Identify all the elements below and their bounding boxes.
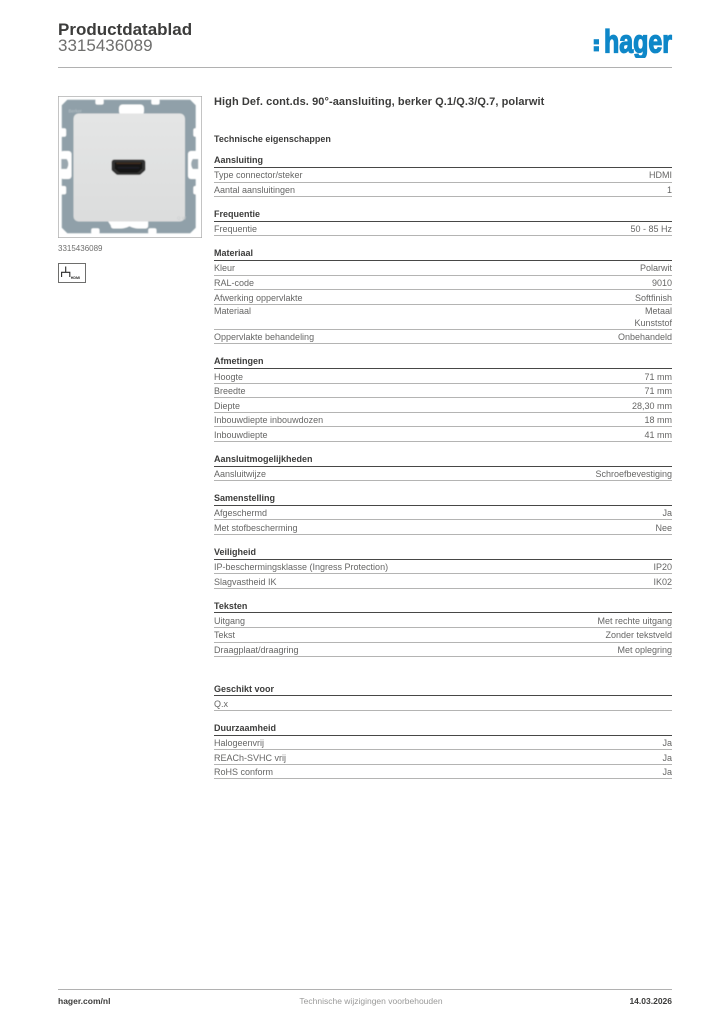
svg-text:Q W: Q W	[177, 216, 187, 221]
svg-text:Berker: Berker	[69, 109, 83, 114]
svg-text:HDMI: HDMI	[71, 276, 80, 280]
svg-text:hager: hager	[604, 24, 672, 58]
